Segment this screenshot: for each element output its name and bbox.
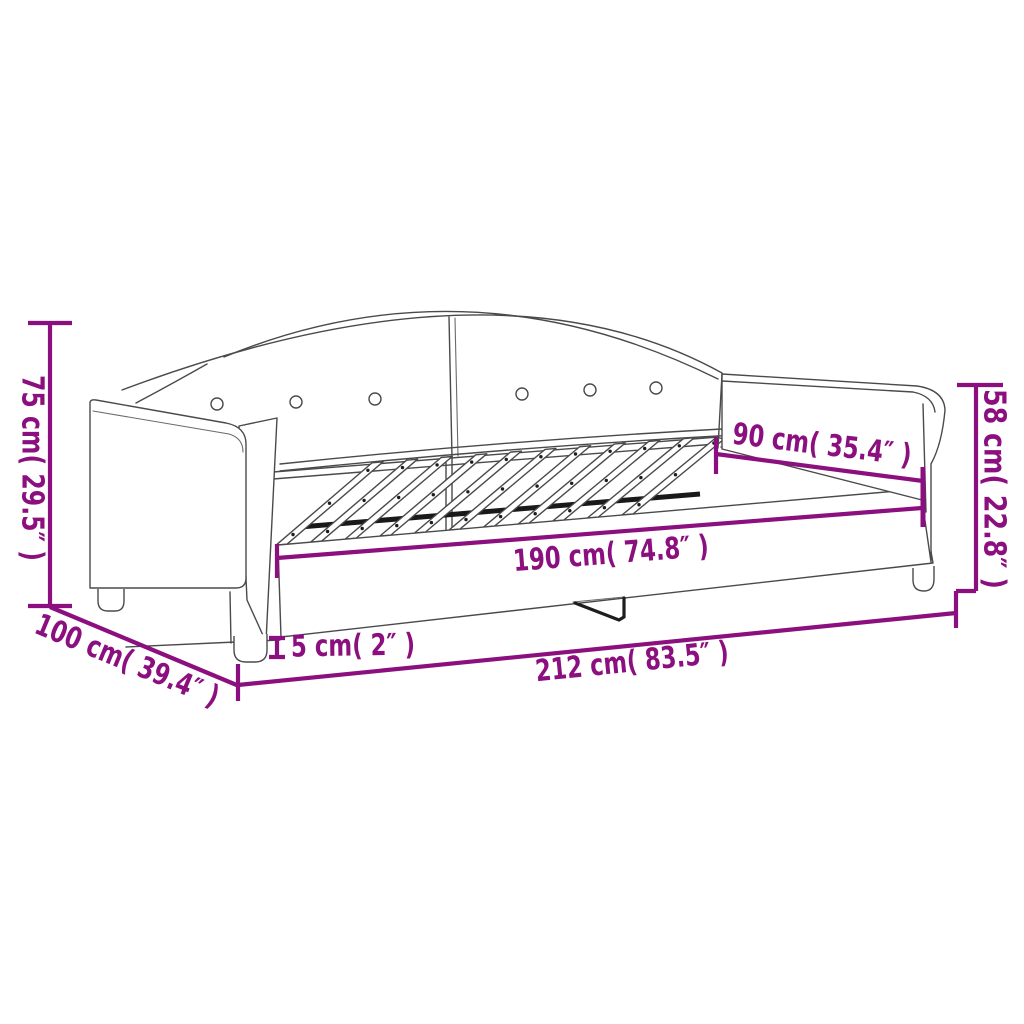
dim-leg-height-label: 5 cm( 2″ ): [291, 627, 416, 664]
slat-screw-dot: [605, 479, 608, 482]
slat-screw-dot: [608, 450, 611, 453]
dim-leg-height: 5 cm( 2″ ): [269, 627, 415, 664]
slat-screw-dot: [570, 482, 573, 485]
dim-height-right-label: 58 cm( 22.8″ ): [977, 389, 1012, 589]
dim-height-left: 75 cm( 29.5″ ): [15, 323, 73, 606]
daybed-illustration: 75 cm( 29.5″ ) 100 cm( 39.4″ ) 212 cm( 8…: [0, 0, 1024, 1024]
tufting-button: [650, 382, 662, 394]
slat-screw-dot: [639, 476, 642, 479]
dim-height-left-label: 75 cm( 29.5″ ): [15, 375, 50, 561]
right-foot: [913, 566, 934, 591]
slat-screw-dot: [568, 509, 571, 512]
dimension-diagram: 75 cm( 29.5″ ) 100 cm( 39.4″ ) 212 cm( 8…: [0, 0, 1024, 1024]
center-back-leg: [446, 457, 452, 532]
slat-screw-dot: [366, 469, 369, 472]
slat-screw-dot: [464, 518, 467, 521]
tufting-button: [290, 396, 302, 408]
slat-screw-dot: [539, 455, 542, 458]
slat-screw-dot: [401, 466, 404, 469]
dim-width-total-label: 100 cm( 39.4″ ): [30, 607, 224, 714]
slat-screw-dot: [534, 512, 537, 515]
dim-height-right: 58 cm( 22.8″ ): [957, 385, 1012, 591]
slat-screw-dot: [430, 521, 433, 524]
slat-screw-dot: [395, 524, 398, 527]
dim-width-total: 100 cm( 39.4″ ): [30, 607, 239, 715]
slat-screw-dot: [361, 527, 364, 530]
slat-screw-dot: [328, 502, 331, 505]
left-armrest: [90, 400, 277, 662]
slat-screw-dot: [678, 444, 681, 447]
slat-screw-dot: [397, 496, 400, 499]
slat-screw-dot: [674, 473, 677, 476]
tufting-button: [584, 384, 596, 396]
tufting-button: [211, 398, 223, 410]
slat-screw-dot: [470, 460, 473, 463]
tufting-button: [369, 393, 381, 405]
slat-screw-dot: [362, 499, 365, 502]
slat-screw-dot: [501, 487, 504, 490]
slat-screw-dot: [435, 463, 438, 466]
tufting-button: [516, 388, 528, 400]
slat-screw-dot: [505, 458, 508, 461]
slat-screw-dot: [326, 530, 329, 533]
slat-screw-dot: [291, 533, 294, 536]
slat-screw-dot: [637, 503, 640, 506]
slat-screw-dot: [466, 490, 469, 493]
tufting-buttons: [211, 382, 662, 410]
dim-length-total-label: 212 cm( 83.5″ ): [534, 635, 731, 689]
slat-screw-dot: [574, 452, 577, 455]
slat-screw-dot: [535, 484, 538, 487]
slat-screw-dot: [603, 506, 606, 509]
slat-screw-dot: [499, 515, 502, 518]
slat-screw-dot: [432, 493, 435, 496]
slat-screw-dot: [643, 447, 646, 450]
